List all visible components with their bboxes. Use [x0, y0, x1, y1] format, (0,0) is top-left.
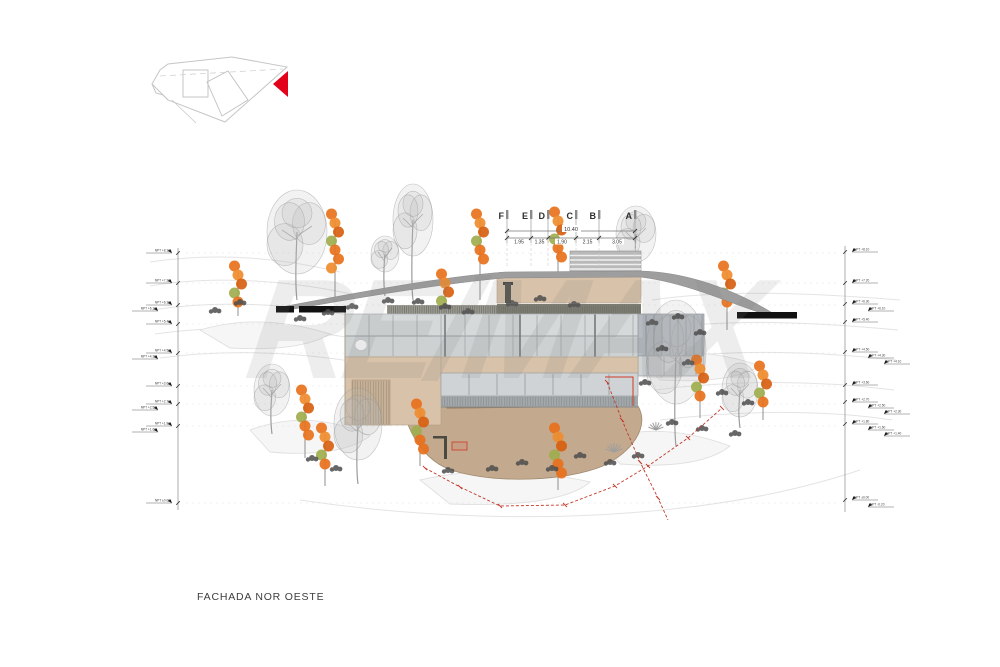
level-marker-label: NPT +6.10	[141, 307, 156, 311]
level-marker-label: NPT +6.10	[870, 307, 885, 311]
level-marker-label: NPT +1.80	[854, 420, 869, 424]
tree-orange	[229, 261, 247, 317]
grid-axis-letter: E	[522, 211, 528, 221]
level-marker-label: NPT +4.50	[854, 348, 869, 352]
red-annotation-box	[452, 442, 467, 450]
level-marker-label: NPT +4.10	[886, 360, 901, 364]
overall-dimension: 10.40	[564, 227, 578, 233]
architectural-elevation-sheet: FEDCBA10.401.951.351.902.153.05 NPT +8.1…	[0, 0, 1000, 667]
level-marker-label: NPT +1.40	[886, 432, 901, 436]
view-direction-arrow-icon	[273, 71, 288, 97]
level-marker-label: NPT +7.20	[155, 279, 170, 283]
tree-orange	[326, 209, 344, 303]
level-marker-label: NPT +1.80	[155, 422, 170, 426]
segment-dimension: 1.95	[514, 240, 524, 246]
segment-dimension: 2.15	[583, 240, 593, 246]
grid-axis-letter: C	[567, 211, 574, 221]
shrub	[412, 298, 425, 305]
level-marker-label: NPT +8.10	[854, 248, 869, 252]
level-marker-label: NPT +8.10	[155, 249, 170, 253]
level-markers-left: NPT +8.10NPT +7.20NPT +6.30NPT +6.10NPT …	[132, 248, 180, 510]
level-marker-label: NPT +3.60	[155, 382, 170, 386]
level-marker-label: NPT +5.40	[155, 320, 170, 324]
grid-axis-letter: A	[626, 211, 633, 221]
level-marker-label: NPT +6.30	[854, 300, 869, 304]
level-marker-label: NPT +2.70	[155, 400, 170, 404]
roof-edge-bar-right	[737, 312, 797, 319]
level-marker-label: NPT +7.20	[854, 279, 869, 283]
shrub	[729, 430, 742, 437]
level-marker-label: NPT +4.50	[155, 349, 170, 353]
level-marker-label: NPT +1.60	[870, 426, 885, 430]
segment-dimension: 1.90	[557, 240, 567, 246]
shrub	[209, 307, 222, 314]
tree-orange	[471, 209, 489, 301]
tree-gray	[267, 190, 327, 300]
chimney	[505, 283, 511, 303]
level-marker-label: NPT +2.50	[141, 406, 156, 410]
roof-edge-bar-left-a	[276, 306, 294, 313]
drawing-title: FACHADA NOR OESTE	[197, 591, 324, 603]
shrub	[346, 303, 359, 310]
level-marker-label: NPT +2.70	[854, 398, 869, 402]
shrub	[330, 465, 343, 472]
roof-edge-bar-left-b	[299, 306, 346, 313]
level-marker-label: NPT -0.20	[870, 503, 885, 507]
tree-gray	[722, 363, 758, 428]
level-marker-label: NPT ±0.00	[854, 496, 869, 500]
level-marker-label: NPT +4.30	[870, 354, 885, 358]
level-marker-label: NPT +3.60	[854, 381, 869, 385]
shrub	[294, 315, 307, 322]
level-marker-label: NPT +6.30	[155, 301, 170, 305]
tree-orange	[754, 361, 772, 421]
grid-axis-letter: D	[539, 211, 546, 221]
level-marker-label: NPT +2.30	[886, 410, 901, 414]
grid-axis-letter: B	[590, 211, 597, 221]
level-marker-label: NPT ±0.00	[155, 499, 170, 503]
upper-wall	[497, 277, 641, 303]
site-key-plan	[152, 57, 288, 123]
level-marker-label: NPT +1.60	[141, 428, 156, 432]
level-marker-label: NPT +2.50	[870, 404, 885, 408]
shrub	[382, 297, 395, 304]
elevation-drawing: FEDCBA10.401.951.351.902.153.05 NPT +8.1…	[0, 0, 1000, 667]
shrub	[666, 419, 679, 426]
level-marker-label: NPT +5.40	[854, 318, 869, 322]
clerestory	[570, 251, 641, 272]
terrace-planter	[355, 340, 367, 351]
segment-dimension: 3.05	[612, 240, 622, 246]
segment-dimension: 1.35	[535, 240, 545, 246]
level-marker-label: NPT +4.30	[141, 355, 156, 359]
grid-axis-letter: F	[499, 211, 505, 221]
